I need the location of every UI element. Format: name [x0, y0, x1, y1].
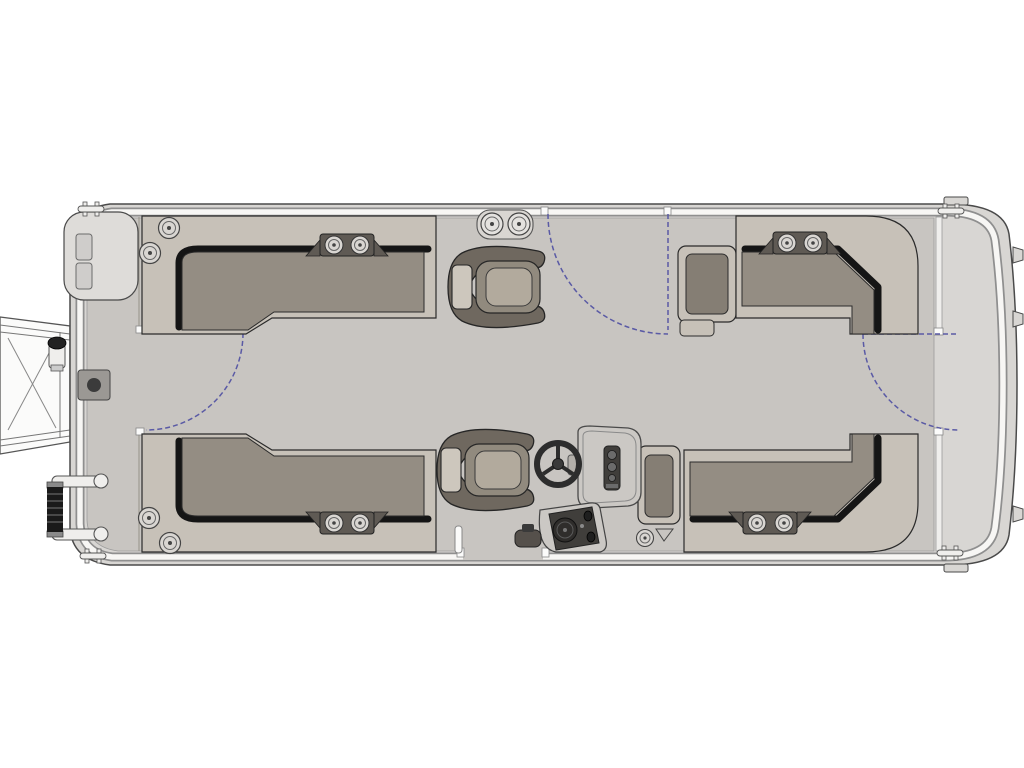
lounge-bow-port — [140, 216, 437, 334]
stern-tab — [1013, 311, 1023, 327]
nose-tab — [76, 263, 92, 289]
helm-footrest-tab — [522, 524, 534, 532]
stern-tab — [1013, 247, 1023, 263]
gate-post — [542, 548, 549, 557]
fence-cup-pod — [477, 210, 533, 239]
bow-light-pole — [48, 337, 66, 371]
stern-tab — [1013, 506, 1023, 522]
chair-seat-front — [441, 448, 461, 492]
bow-nose — [64, 212, 138, 300]
captain-chair-forward — [448, 246, 545, 327]
stern-step-bottom — [944, 564, 968, 572]
lounge-stern-port — [139, 434, 437, 554]
boat-floor-plan — [0, 0, 1024, 768]
helm-footrest — [515, 530, 541, 547]
gate-post — [541, 207, 548, 215]
deck-cupholder — [637, 530, 654, 547]
nose-tab — [76, 234, 92, 260]
captain-chair-helm — [437, 429, 534, 510]
gate-post — [934, 428, 943, 435]
chair-pad — [475, 451, 521, 489]
screenshot-canvas — [0, 0, 1024, 768]
bow-deck-plate — [78, 370, 110, 400]
gate-post — [664, 207, 671, 215]
chair-seat-front — [452, 265, 472, 309]
chair-pad — [486, 268, 532, 306]
gate-post-helm — [455, 526, 462, 553]
